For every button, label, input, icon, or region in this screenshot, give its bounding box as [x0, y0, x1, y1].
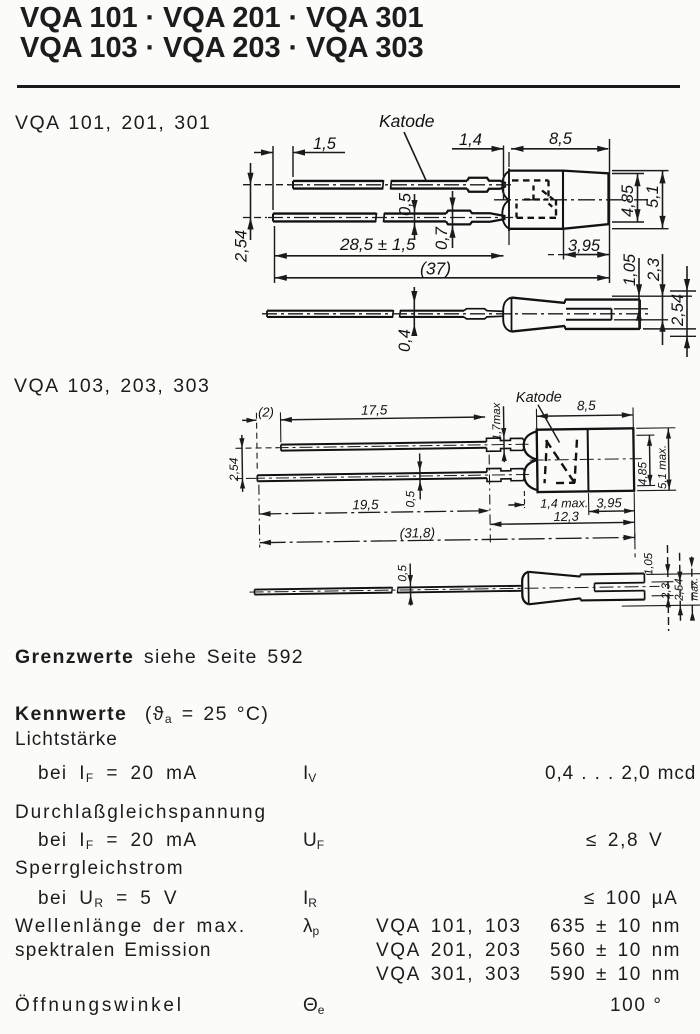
svg-text:8,5: 8,5 [549, 130, 573, 148]
svg-text:1,5: 1,5 [313, 135, 337, 153]
svg-text:5,1 max.: 5,1 max. [657, 445, 670, 489]
svg-text:2,54: 2,54 [227, 457, 241, 482]
svg-text:0,5: 0,5 [397, 192, 415, 216]
svg-text:1,4: 1,4 [459, 131, 482, 149]
svg-text:1,05: 1,05 [643, 552, 655, 575]
svg-text:5,1: 5,1 [644, 185, 662, 208]
svg-text:Katode: Katode [516, 389, 562, 406]
svg-text:2,54: 2,54 [233, 230, 251, 263]
svg-text:0,5: 0,5 [403, 490, 417, 507]
svg-text:12,3: 12,3 [553, 509, 579, 524]
svg-text:(31,8): (31,8) [400, 525, 435, 540]
svg-text:0,5: 0,5 [395, 565, 409, 582]
svg-text:1,7max: 1,7max [491, 401, 504, 440]
svg-text:4,85: 4,85 [635, 462, 649, 486]
svg-text:19,5: 19,5 [352, 497, 379, 512]
svg-text:3,95: 3,95 [596, 495, 622, 510]
svg-text:(2): (2) [258, 404, 274, 419]
svg-text:2,3: 2,3 [660, 582, 672, 600]
svg-text:2,3: 2,3 [645, 257, 663, 282]
svg-text:4,85: 4,85 [619, 184, 637, 217]
svg-text:2,54: 2,54 [673, 578, 685, 602]
svg-text:1,05: 1,05 [621, 253, 639, 286]
svg-text:28,5 ± 1,5: 28,5 ± 1,5 [339, 235, 416, 254]
svg-text:3,95: 3,95 [568, 237, 601, 255]
svg-text:17,5: 17,5 [361, 402, 388, 417]
svg-text:Katode: Katode [379, 111, 435, 131]
svg-text:8,5: 8,5 [577, 398, 596, 413]
svg-text:2,54: 2,54 [669, 294, 687, 327]
svg-text:0,7: 0,7 [433, 226, 451, 250]
svg-text:max.: max. [688, 578, 700, 601]
svg-text:(37): (37) [420, 259, 451, 279]
svg-text:0,4: 0,4 [396, 329, 414, 352]
